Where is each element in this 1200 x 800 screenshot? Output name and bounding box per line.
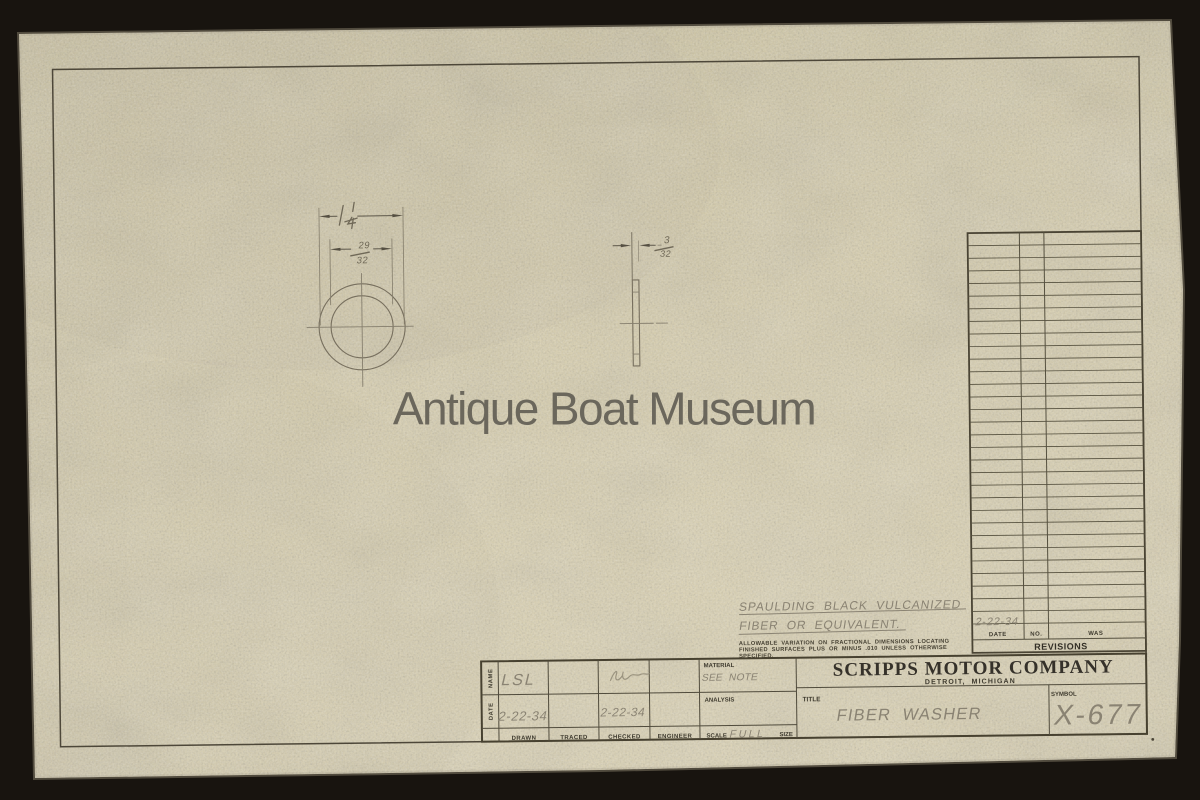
svg-text:DETROIT, MICHIGAN: DETROIT, MICHIGAN <box>925 678 1016 686</box>
svg-text:32: 32 <box>659 249 672 259</box>
svg-text:ENGINEER: ENGINEER <box>658 734 693 740</box>
svg-text:ANALYSIS: ANALYSIS <box>705 697 735 703</box>
svg-text:WAS: WAS <box>1088 631 1103 637</box>
svg-text:2-22-34: 2-22-34 <box>599 705 647 719</box>
svg-text:LSL: LSL <box>499 671 538 689</box>
svg-text:X-677: X-677 <box>1052 699 1146 732</box>
svg-text:DATE: DATE <box>989 632 1007 638</box>
svg-text:SEE NOTE: SEE NOTE <box>701 672 759 684</box>
svg-text:Antique Boat Museum: Antique Boat Museum <box>393 383 815 435</box>
svg-text:NO.: NO. <box>1030 632 1042 638</box>
svg-text:SIZE: SIZE <box>779 732 792 738</box>
svg-text:32: 32 <box>356 255 369 266</box>
svg-text:2-22-34: 2-22-34 <box>497 708 549 723</box>
svg-text:CHECKED: CHECKED <box>608 734 641 740</box>
svg-text:29: 29 <box>358 240 371 251</box>
svg-text:NAME: NAME <box>488 669 494 689</box>
svg-text:SCALE: SCALE <box>706 733 726 739</box>
svg-text:TRACED: TRACED <box>560 735 588 741</box>
svg-text:MATERIAL: MATERIAL <box>704 663 735 669</box>
svg-text:TITLE: TITLE <box>803 696 822 703</box>
svg-text:FIBER WASHER: FIBER WASHER <box>835 704 983 725</box>
svg-text:DATE: DATE <box>489 702 495 720</box>
svg-text:REVISIONS: REVISIONS <box>1034 641 1088 652</box>
svg-text:SYMBOL: SYMBOL <box>1051 692 1077 698</box>
svg-text:FULL: FULL <box>728 728 766 740</box>
svg-text:2-22-34: 2-22-34 <box>974 616 1020 628</box>
svg-text:SCRIPPS MOTOR COMPANY: SCRIPPS MOTOR COMPANY <box>833 656 1114 680</box>
svg-text:DRAWN: DRAWN <box>512 736 537 742</box>
